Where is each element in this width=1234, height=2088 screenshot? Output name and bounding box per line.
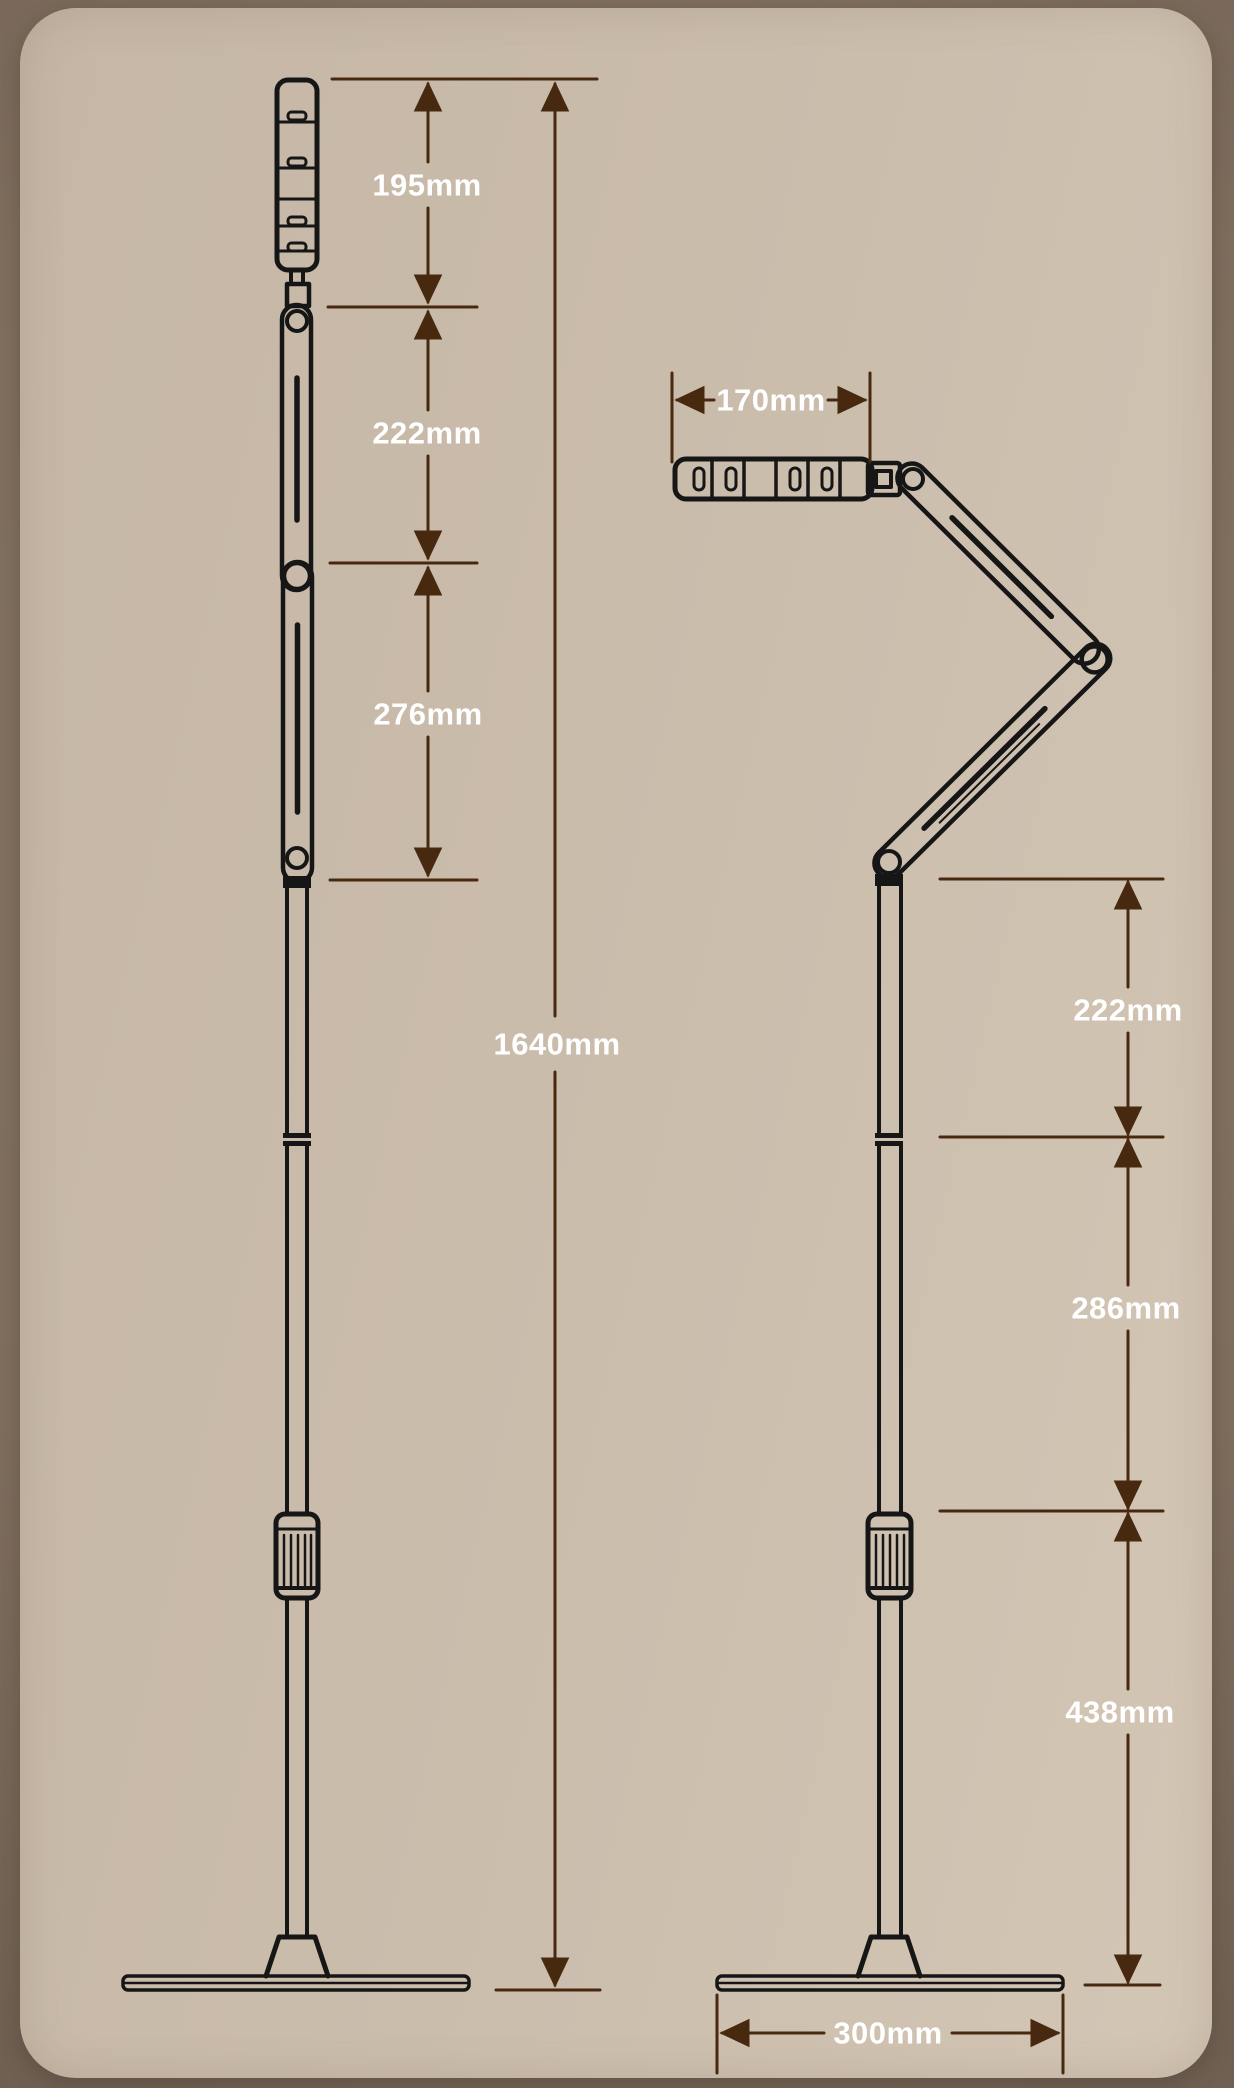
adjuster-collar-side (868, 1514, 911, 1598)
lower-arm-front (283, 562, 312, 882)
dimension-label-base-width: 300mm (833, 2018, 942, 2049)
dimension-diagram-page: 195mm 222mm 276mm 1640mm 170mm 222mm 286… (0, 0, 1234, 2088)
upper-arm-front (282, 305, 311, 590)
upper-arm-side (891, 457, 1104, 669)
side-view-drawing (675, 457, 1116, 1990)
dimension-label-head-length: 195mm (372, 170, 481, 201)
lower-arm-side (868, 638, 1116, 884)
base-side (717, 1598, 1063, 1990)
front-view-drawing (123, 80, 469, 1990)
telescopic-pole-side (875, 874, 903, 1514)
lamp-head-side (675, 459, 872, 499)
dimension-label-upper-pole: 222mm (1073, 995, 1182, 1026)
adjuster-collar-front (276, 1514, 318, 1598)
telescopic-pole-front (283, 876, 311, 1514)
dimension-label-head-width: 170mm (716, 385, 825, 416)
head-hinge-front (287, 270, 309, 331)
dimension-label-total-height: 1640mm (493, 1029, 620, 1060)
dimension-label-lower-pole: 438mm (1065, 1697, 1174, 1728)
dimension-label-middle-pole: 286mm (1071, 1293, 1180, 1324)
dimension-label-upper-arm: 222mm (372, 418, 481, 449)
lamp-head-front (277, 80, 317, 270)
side-view-dimension-lines (672, 373, 1163, 2073)
pole-top-hinge (878, 851, 900, 873)
dimension-label-lower-arm: 276mm (373, 699, 482, 730)
base-front (123, 1598, 469, 1990)
